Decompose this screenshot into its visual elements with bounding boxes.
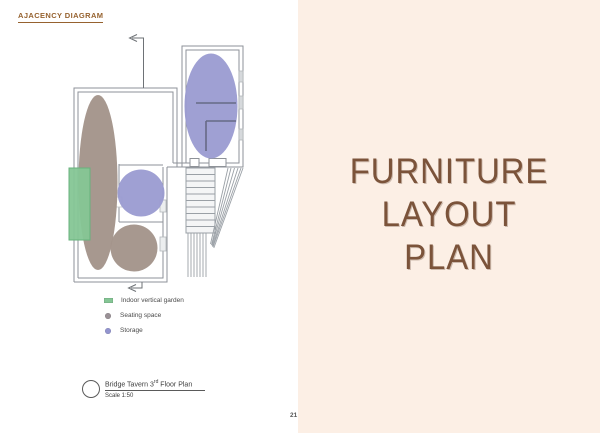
section-marker-bottom <box>129 282 143 292</box>
page: { "header": { "title": "AJACENCY DIAGRAM… <box>0 0 600 433</box>
seating-swatch-icon <box>105 313 111 319</box>
legend-item-garden: Indoor vertical garden <box>104 293 184 308</box>
legend: Indoor vertical garden Seating space Sto… <box>104 293 184 338</box>
document-page: AJACENCY DIAGRAM <box>0 0 298 433</box>
title-block-text: Bridge Tavern 3rd Floor Plan Scale 1:50 <box>105 379 205 399</box>
legend-label: Indoor vertical garden <box>121 297 184 304</box>
seating-circle <box>111 225 158 272</box>
section-heading-line1: FURNITURE <box>307 150 591 193</box>
legend-label: Storage <box>120 327 143 334</box>
storage-swatch-icon <box>105 328 111 334</box>
drawing-number-circle-icon <box>82 380 100 398</box>
plan-name: Bridge Tavern 3rd Floor Plan <box>105 379 205 391</box>
staircase <box>186 168 243 277</box>
section-heading-line2: LAYOUT <box>307 193 591 236</box>
vertical-garden-rect <box>69 168 90 240</box>
plan-name-pre: Bridge Tavern 3 <box>105 381 154 388</box>
garden-swatch-icon <box>104 298 113 303</box>
floor-plan-svg <box>0 0 300 433</box>
legend-item-storage: Storage <box>104 323 184 338</box>
section-marker-top <box>130 35 144 89</box>
legend-item-seating: Seating space <box>104 308 184 323</box>
page-number: 21 <box>290 412 297 419</box>
storage-circle <box>118 170 165 217</box>
section-heading-line3: PLAN <box>307 236 591 279</box>
lower-stair-flight <box>188 233 206 277</box>
legend-label: Seating space <box>120 312 161 319</box>
storage-ellipse <box>185 54 238 159</box>
section-heading: FURNITURE LAYOUT PLAN <box>307 150 591 279</box>
plan-name-post: Floor Plan <box>158 381 192 388</box>
plan-scale: Scale 1:50 <box>105 393 205 399</box>
section-cover-panel: FURNITURE LAYOUT PLAN <box>298 0 600 433</box>
